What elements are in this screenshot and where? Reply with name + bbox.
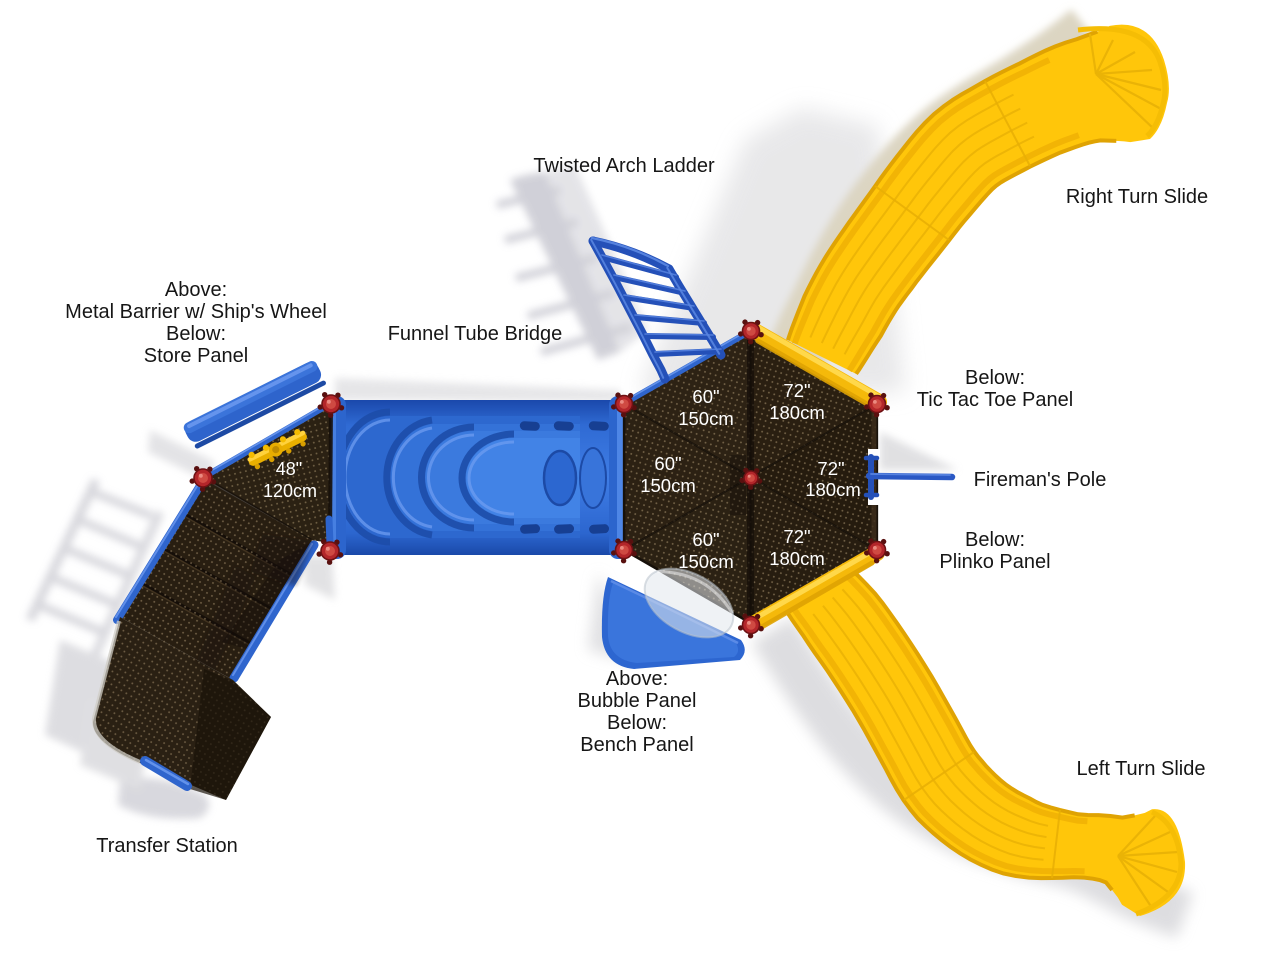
- svg-text:Fireman's Pole: Fireman's Pole: [974, 469, 1107, 491]
- svg-text:Bubble Panel: Bubble Panel: [578, 690, 697, 712]
- svg-text:150cm: 150cm: [640, 475, 696, 496]
- svg-text:180cm: 180cm: [769, 402, 825, 423]
- svg-text:Below:: Below:: [166, 323, 226, 345]
- svg-text:180cm: 180cm: [805, 479, 861, 500]
- svg-text:Store Panel: Store Panel: [144, 345, 249, 367]
- svg-text:Above:: Above:: [165, 279, 227, 301]
- svg-text:Below:: Below:: [965, 367, 1025, 389]
- svg-text:Plinko Panel: Plinko Panel: [939, 551, 1050, 573]
- svg-text:Transfer Station: Transfer Station: [96, 835, 238, 857]
- svg-text:60": 60": [692, 386, 719, 407]
- svg-text:60": 60": [692, 529, 719, 550]
- svg-text:Below:: Below:: [607, 712, 667, 734]
- svg-text:Right Turn Slide: Right Turn Slide: [1066, 186, 1208, 208]
- svg-text:Left Turn Slide: Left Turn Slide: [1077, 758, 1206, 780]
- svg-text:180cm: 180cm: [769, 548, 825, 569]
- svg-text:Bench Panel: Bench Panel: [580, 734, 693, 756]
- svg-text:Metal Barrier w/ Ship's Wheel: Metal Barrier w/ Ship's Wheel: [65, 301, 327, 323]
- svg-text:150cm: 150cm: [678, 408, 734, 429]
- svg-text:150cm: 150cm: [678, 551, 734, 572]
- svg-text:Tic Tac Toe Panel: Tic Tac Toe Panel: [917, 389, 1073, 411]
- svg-text:72": 72": [783, 526, 810, 547]
- svg-text:120cm: 120cm: [263, 481, 317, 501]
- svg-text:72": 72": [783, 380, 810, 401]
- svg-text:72": 72": [817, 458, 844, 479]
- svg-text:48": 48": [276, 459, 302, 479]
- svg-text:Twisted Arch Ladder: Twisted Arch Ladder: [533, 155, 715, 177]
- svg-text:Above:: Above:: [606, 668, 668, 690]
- svg-text:Below:: Below:: [965, 529, 1025, 551]
- svg-text:60": 60": [654, 453, 681, 474]
- svg-text:Funnel Tube Bridge: Funnel Tube Bridge: [388, 323, 563, 345]
